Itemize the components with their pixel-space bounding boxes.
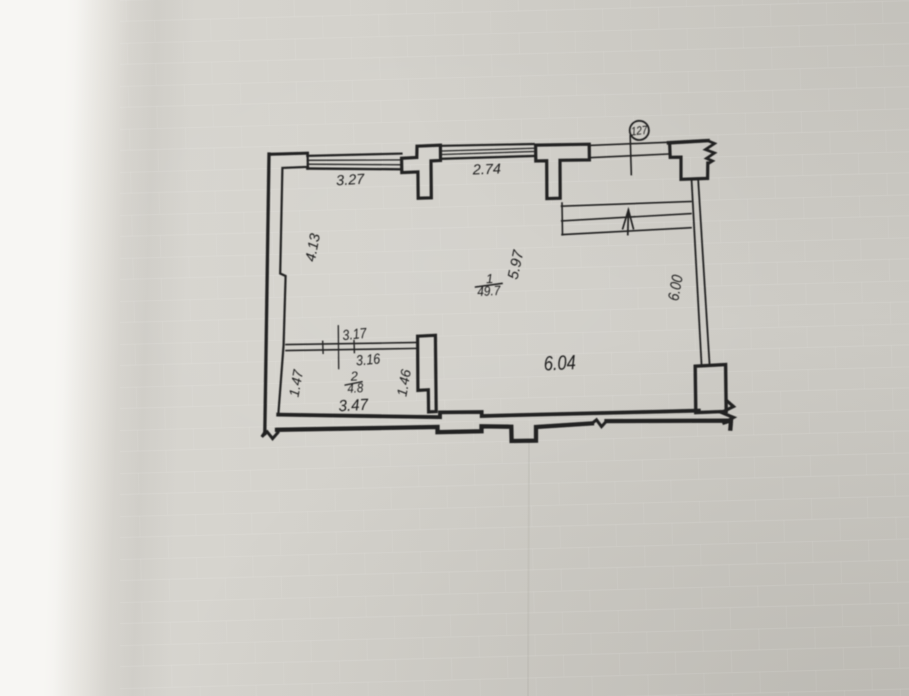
svg-text:3.17: 3.17: [342, 325, 368, 344]
svg-text:2.74: 2.74: [471, 162, 501, 179]
svg-text:49.7: 49.7: [477, 282, 502, 299]
svg-text:4.8: 4.8: [347, 380, 364, 396]
svg-text:3.16: 3.16: [355, 351, 381, 369]
svg-text:3.27: 3.27: [336, 172, 366, 190]
svg-text:127: 127: [630, 124, 648, 139]
svg-text:3.47: 3.47: [338, 396, 370, 415]
svg-text:6.04: 6.04: [543, 350, 576, 375]
